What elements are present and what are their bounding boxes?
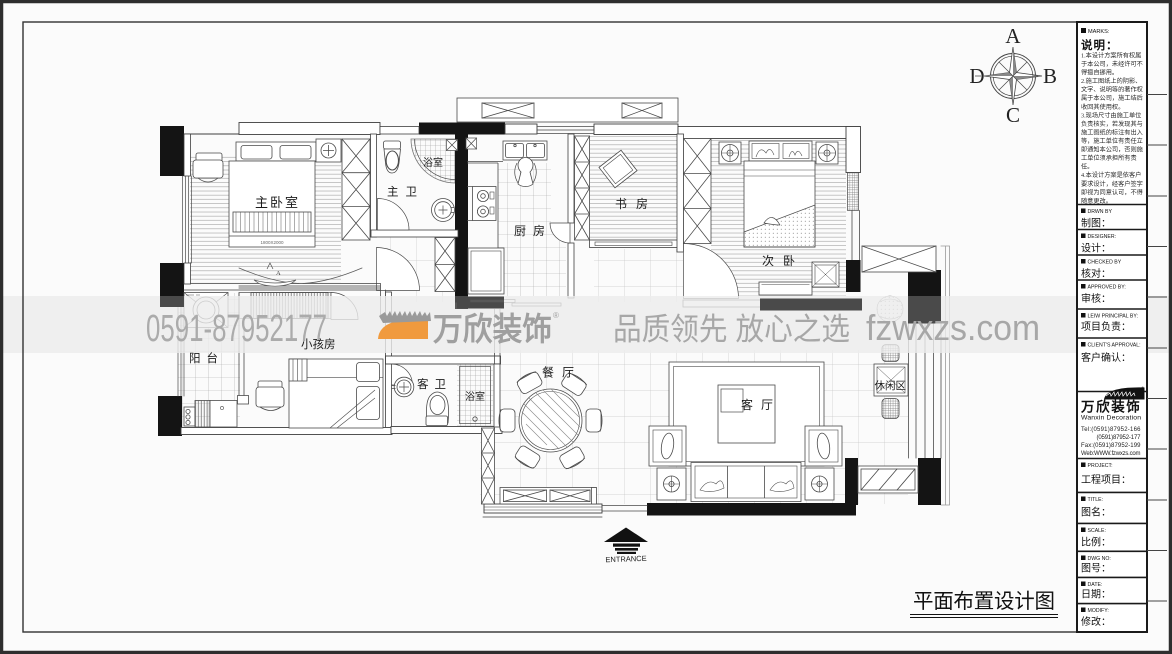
svg-text:0591-87952177: 0591-87952177 [146,308,327,350]
svg-text:浴室: 浴室 [465,390,485,403]
svg-text:Web:WWW.fzwxzs.com: Web:WWW.fzwxzs.com [1081,451,1141,457]
svg-text:DWG NO:: DWG NO: [1088,556,1111,562]
svg-text:PROJECT:: PROJECT: [1088,463,1113,469]
svg-text:TITLE:: TITLE: [1088,497,1104,503]
svg-text:(0591)87952-177: (0591)87952-177 [1097,435,1142,441]
svg-text:工程项目：: 工程项目： [1081,474,1131,486]
svg-text:Fax:(0591)87952-199: Fax:(0591)87952-199 [1081,443,1141,449]
svg-text:客卫: 客卫 [417,377,452,391]
svg-text:DATE:: DATE: [1088,582,1103,588]
svg-text:ENTRANCE: ENTRANCE [605,554,647,564]
svg-text:餐厅: 餐厅 [542,365,582,380]
svg-text:即视为同意认可，不得: 即视为同意认可，不得 [1081,188,1143,196]
svg-text:MARKS:: MARKS: [1088,29,1110,35]
svg-text:客户确认：: 客户确认： [1081,351,1131,364]
svg-text:APPROVED BY:: APPROVED BY: [1088,285,1126,291]
svg-text:主卧室: 主卧室 [255,195,300,210]
svg-text:浴室: 浴室 [423,156,443,169]
svg-text:任。: 任。 [1081,163,1093,171]
svg-text:说明：: 说明： [1081,38,1119,52]
svg-text:属于本公司，施工结后: 属于本公司，施工结后 [1081,94,1143,102]
svg-text:工单位须承担所有责: 工单位须承担所有责 [1081,154,1137,162]
svg-text:B: B [1043,64,1057,88]
svg-text:万欣装饰: 万欣装饰 [433,311,552,347]
svg-text:得擅自挪用。: 得擅自挪用。 [1081,69,1118,77]
svg-text:平面布置设计图: 平面布置设计图 [913,590,1055,613]
svg-text:4.本设计方案是依客户: 4.本设计方案是依客户 [1081,171,1141,179]
svg-text:要求设计，经客户签字: 要求设计，经客户签字 [1081,180,1143,188]
svg-text:CLIENT'S APPROVAL:: CLIENT'S APPROVAL: [1088,343,1141,349]
svg-text:等，施工单位有责任立: 等，施工单位有责任立 [1081,137,1143,145]
svg-text:MODIFY:: MODIFY: [1088,608,1109,614]
svg-text:修改：: 修改： [1081,615,1111,628]
svg-text:小孩房: 小孩房 [301,338,336,351]
svg-text:DRWN BY: DRWN BY [1088,209,1113,215]
svg-text:A: A [1005,24,1021,48]
svg-text:随意更改。: 随意更改。 [1081,197,1112,205]
svg-text:负责核实，若发现其与: 负责核实，若发现其与 [1081,120,1143,128]
svg-text:厨房: 厨房 [514,223,552,238]
svg-text:核对：: 核对： [1081,267,1111,280]
svg-text:休闲区: 休闲区 [875,379,907,392]
svg-text:CHECKED BY: CHECKED BY [1088,260,1122,266]
svg-text:LEIW PRINCIPAL BY:: LEIW PRINCIPAL BY: [1088,314,1138,320]
svg-text:DESIGNER:: DESIGNER: [1088,234,1117,240]
svg-text:客厅: 客厅 [741,397,781,412]
svg-text:万欣装饰: 万欣装饰 [1080,399,1141,415]
svg-text:C: C [1006,103,1020,127]
svg-text:文字、说明等的著作权: 文字、说明等的著作权 [1081,86,1143,94]
svg-text:图号：: 图号： [1081,563,1111,575]
svg-text:制图：: 制图： [1081,217,1111,230]
svg-text:图名：: 图名： [1081,506,1111,519]
svg-text:SCALE:: SCALE: [1088,528,1106,534]
svg-text:项目负责：: 项目负责： [1081,320,1131,333]
svg-text:3.现场尺寸由施工单位: 3.现场尺寸由施工单位 [1081,111,1141,119]
svg-text:2.施工图纸上的阴影、: 2.施工图纸上的阴影、 [1081,77,1141,85]
svg-text:D: D [969,64,984,88]
svg-text:日期：: 日期： [1081,589,1111,601]
svg-text:1.本设计方案所有权属: 1.本设计方案所有权属 [1081,52,1141,60]
svg-text:书房: 书房 [615,196,657,211]
svg-text:次卧: 次卧 [762,254,804,268]
svg-text:fzwxzs.com: fzwxzs.com [866,307,1040,348]
svg-text:即通知本公司，否则施: 即通知本公司，否则施 [1081,146,1143,154]
svg-text:比例：: 比例： [1081,536,1111,549]
svg-text:1800X2000: 1800X2000 [260,240,284,245]
svg-text:A: A [276,270,281,277]
svg-text:审核：: 审核： [1081,292,1111,305]
svg-text:Tel:(0591)87952-166: Tel:(0591)87952-166 [1081,427,1141,433]
svg-text:收回其使用权。: 收回其使用权。 [1081,103,1124,111]
svg-text:于本公司，未经许可不: 于本公司，未经许可不 [1081,60,1143,68]
svg-text:Wanxin Decoration: Wanxin Decoration [1081,415,1141,422]
svg-text:施工图纸的标注有出入: 施工图纸的标注有出入 [1081,128,1143,136]
svg-text:阳台: 阳台 [189,351,224,365]
svg-text:®: ® [553,311,559,320]
svg-text:主卫: 主卫 [387,186,424,199]
svg-text:品质领先 放心之选: 品质领先 放心之选 [613,312,850,347]
svg-text:设计：: 设计： [1081,242,1111,255]
